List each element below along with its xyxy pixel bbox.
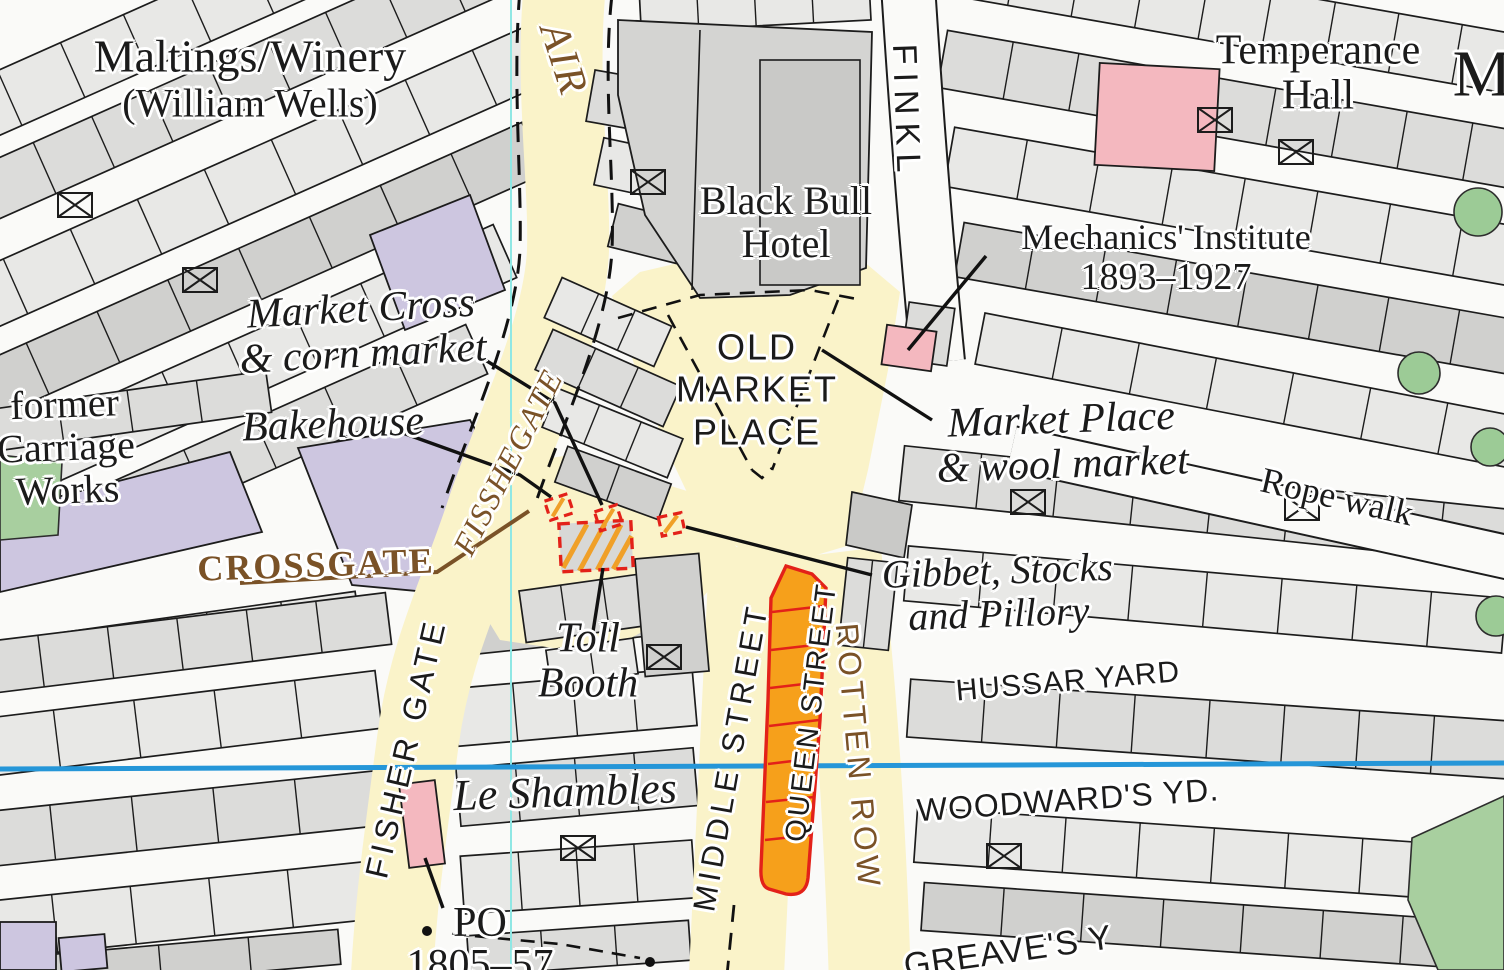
label-old-market-place: OLD MARKET PLACE xyxy=(676,326,838,453)
label-temperance-hall: Temperance Hall xyxy=(1216,29,1421,120)
label-black-bull-hotel: Black Bull Hotel xyxy=(700,179,872,265)
label-m-partial: M xyxy=(1453,38,1504,109)
label-mechanics-institute: Mechanics' Institute 1893–1927 xyxy=(1021,218,1310,298)
site-marker-toll-booth xyxy=(559,520,633,572)
label-market-place-wool: Market Place & wool market xyxy=(935,393,1190,492)
label-post-office: PO 1805–57 xyxy=(407,902,554,970)
label-street-finkle: FINKL xyxy=(885,43,926,181)
map-viewport[interactable]: Maltings/Winery (William Wells) former C… xyxy=(0,0,1504,970)
label-carriage-works: former Carriage Works xyxy=(0,380,137,514)
label-maltings-winery: Maltings/Winery (William Wells) xyxy=(94,32,406,125)
label-toll-booth: Toll Booth xyxy=(538,617,638,708)
label-street-crossgate: CROSSGATE xyxy=(197,541,436,588)
boundary-dot xyxy=(645,957,655,967)
label-bakehouse: Bakehouse xyxy=(241,399,424,451)
label-le-shambles: Le Shambles xyxy=(452,764,677,819)
label-market-cross: Market Cross & corn market xyxy=(236,280,488,384)
label-gibbet-stocks: Gibbet, Stocks and Pillory xyxy=(881,545,1115,639)
temperance-hall-building xyxy=(1094,63,1219,171)
